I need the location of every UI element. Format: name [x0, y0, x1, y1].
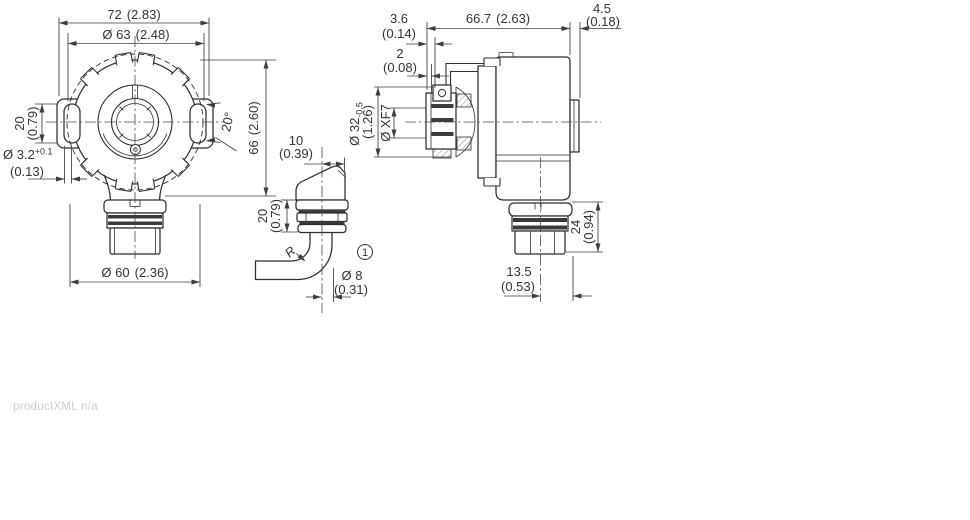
front-right-slot: [190, 104, 206, 143]
dim-side-cap: 4.5 (0.18): [580, 1, 621, 98]
dim-cable-gland-label: 20(0.79): [255, 199, 283, 233]
dim-cable-diameter-inch: (0.31): [334, 282, 368, 297]
dim-front-height-label: 66(2.60): [246, 101, 261, 154]
dim-side-connector-height-label: 24(0.94): [568, 210, 596, 244]
side-connector-hex: [515, 231, 565, 254]
side-view: [405, 53, 601, 303]
cable-gland-cap: [296, 166, 345, 200]
dim-side-bore-label: Ø XF7: [378, 104, 393, 142]
dim-front-width-label: 72(2.83): [107, 7, 160, 22]
dim-side-clamp-od-label: Ø 32-0.5(1.26): [347, 102, 375, 146]
dim-side-length-label: 66.7(2.63): [466, 11, 530, 26]
dim-side-slot-depth-inch: (0.08): [383, 60, 417, 75]
dim-front-pilot-label: Ø 60(2.36): [101, 265, 168, 280]
dim-cable-diameter: Ø 8 (0.31): [306, 268, 368, 302]
dim-side-connector-offset-label: 13.5: [506, 264, 531, 279]
footer-note: productXML n/a: [13, 401, 98, 413]
dim-front-slot-length: 20(0.79): [12, 104, 57, 143]
dim-cable-offset-inch: (0.39): [279, 146, 313, 161]
dim-side-spring-label: 3.6: [390, 11, 408, 26]
dim-front-slot-width-inch: (0.13): [10, 164, 44, 179]
side-body: [496, 57, 570, 200]
cable-callout-number: 1: [362, 247, 368, 259]
side-rear-cap: [570, 100, 579, 152]
dim-side-spring-inch: (0.14): [382, 26, 416, 41]
dim-front-slot-angle-label: 20°: [218, 111, 237, 133]
dim-side-connector-offset-inch: (0.53): [501, 279, 535, 294]
dim-front-bolt-circle-label: Ø 63(2.48): [102, 27, 169, 42]
dim-cable-gland: 20(0.79): [255, 199, 298, 233]
side-torque-block: [433, 85, 451, 101]
front-view: [46, 36, 224, 259]
dim-side-spring: 3.6 (0.14): [382, 11, 452, 88]
encoder-dimensional-drawing: 72(2.83) Ø 63(2.48) 20(0.79) Ø 3.2+0.1 (…: [0, 0, 970, 520]
dim-front-slot-width: Ø 3.2+0.1 (0.13): [3, 146, 87, 184]
technical-drawing-page: 72(2.83) Ø 63(2.48) 20(0.79) Ø 3.2+0.1 (…: [0, 0, 970, 520]
dim-side-slot-depth-label: 2: [396, 46, 403, 61]
front-left-slot: [64, 104, 80, 143]
dim-cable-radius-label: R: [282, 244, 298, 260]
dim-front-slot-length-label: 20(0.79): [12, 107, 40, 141]
dim-cable-diameter-label: Ø 8: [342, 268, 363, 283]
dim-side-cap-inch: (0.18): [586, 14, 620, 29]
dim-side-bore: Ø XF7: [378, 104, 426, 142]
cable-callout: 1: [358, 245, 373, 260]
dim-side-connector-offset: 13.5 (0.53): [501, 256, 592, 301]
cable-detail-view: R 1 10 (0.39) 20(0.79) Ø 8: [255, 133, 373, 313]
dim-front-slot-width-label: Ø 3.2+0.1: [3, 147, 53, 163]
